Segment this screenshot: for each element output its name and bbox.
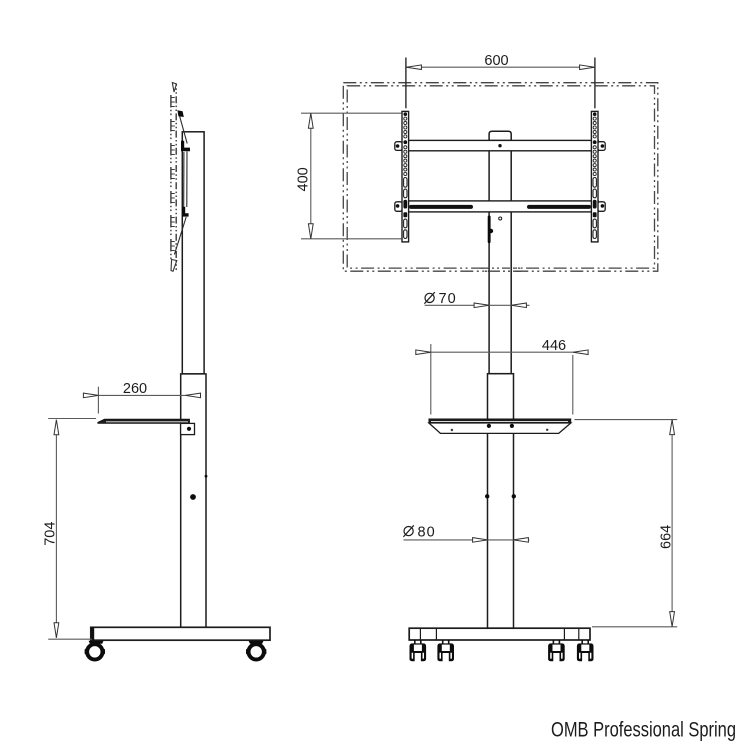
svg-text:70: 70 xyxy=(439,291,457,307)
svg-text:664: 664 xyxy=(659,525,675,549)
svg-text:400: 400 xyxy=(296,167,312,191)
svg-text:704: 704 xyxy=(42,522,58,546)
svg-text:OMB Professional Spring: OMB Professional Spring xyxy=(551,719,736,742)
svg-text:80: 80 xyxy=(418,525,436,541)
svg-text:600: 600 xyxy=(484,53,508,69)
svg-text:446: 446 xyxy=(542,338,566,354)
svg-text:260: 260 xyxy=(123,381,147,397)
